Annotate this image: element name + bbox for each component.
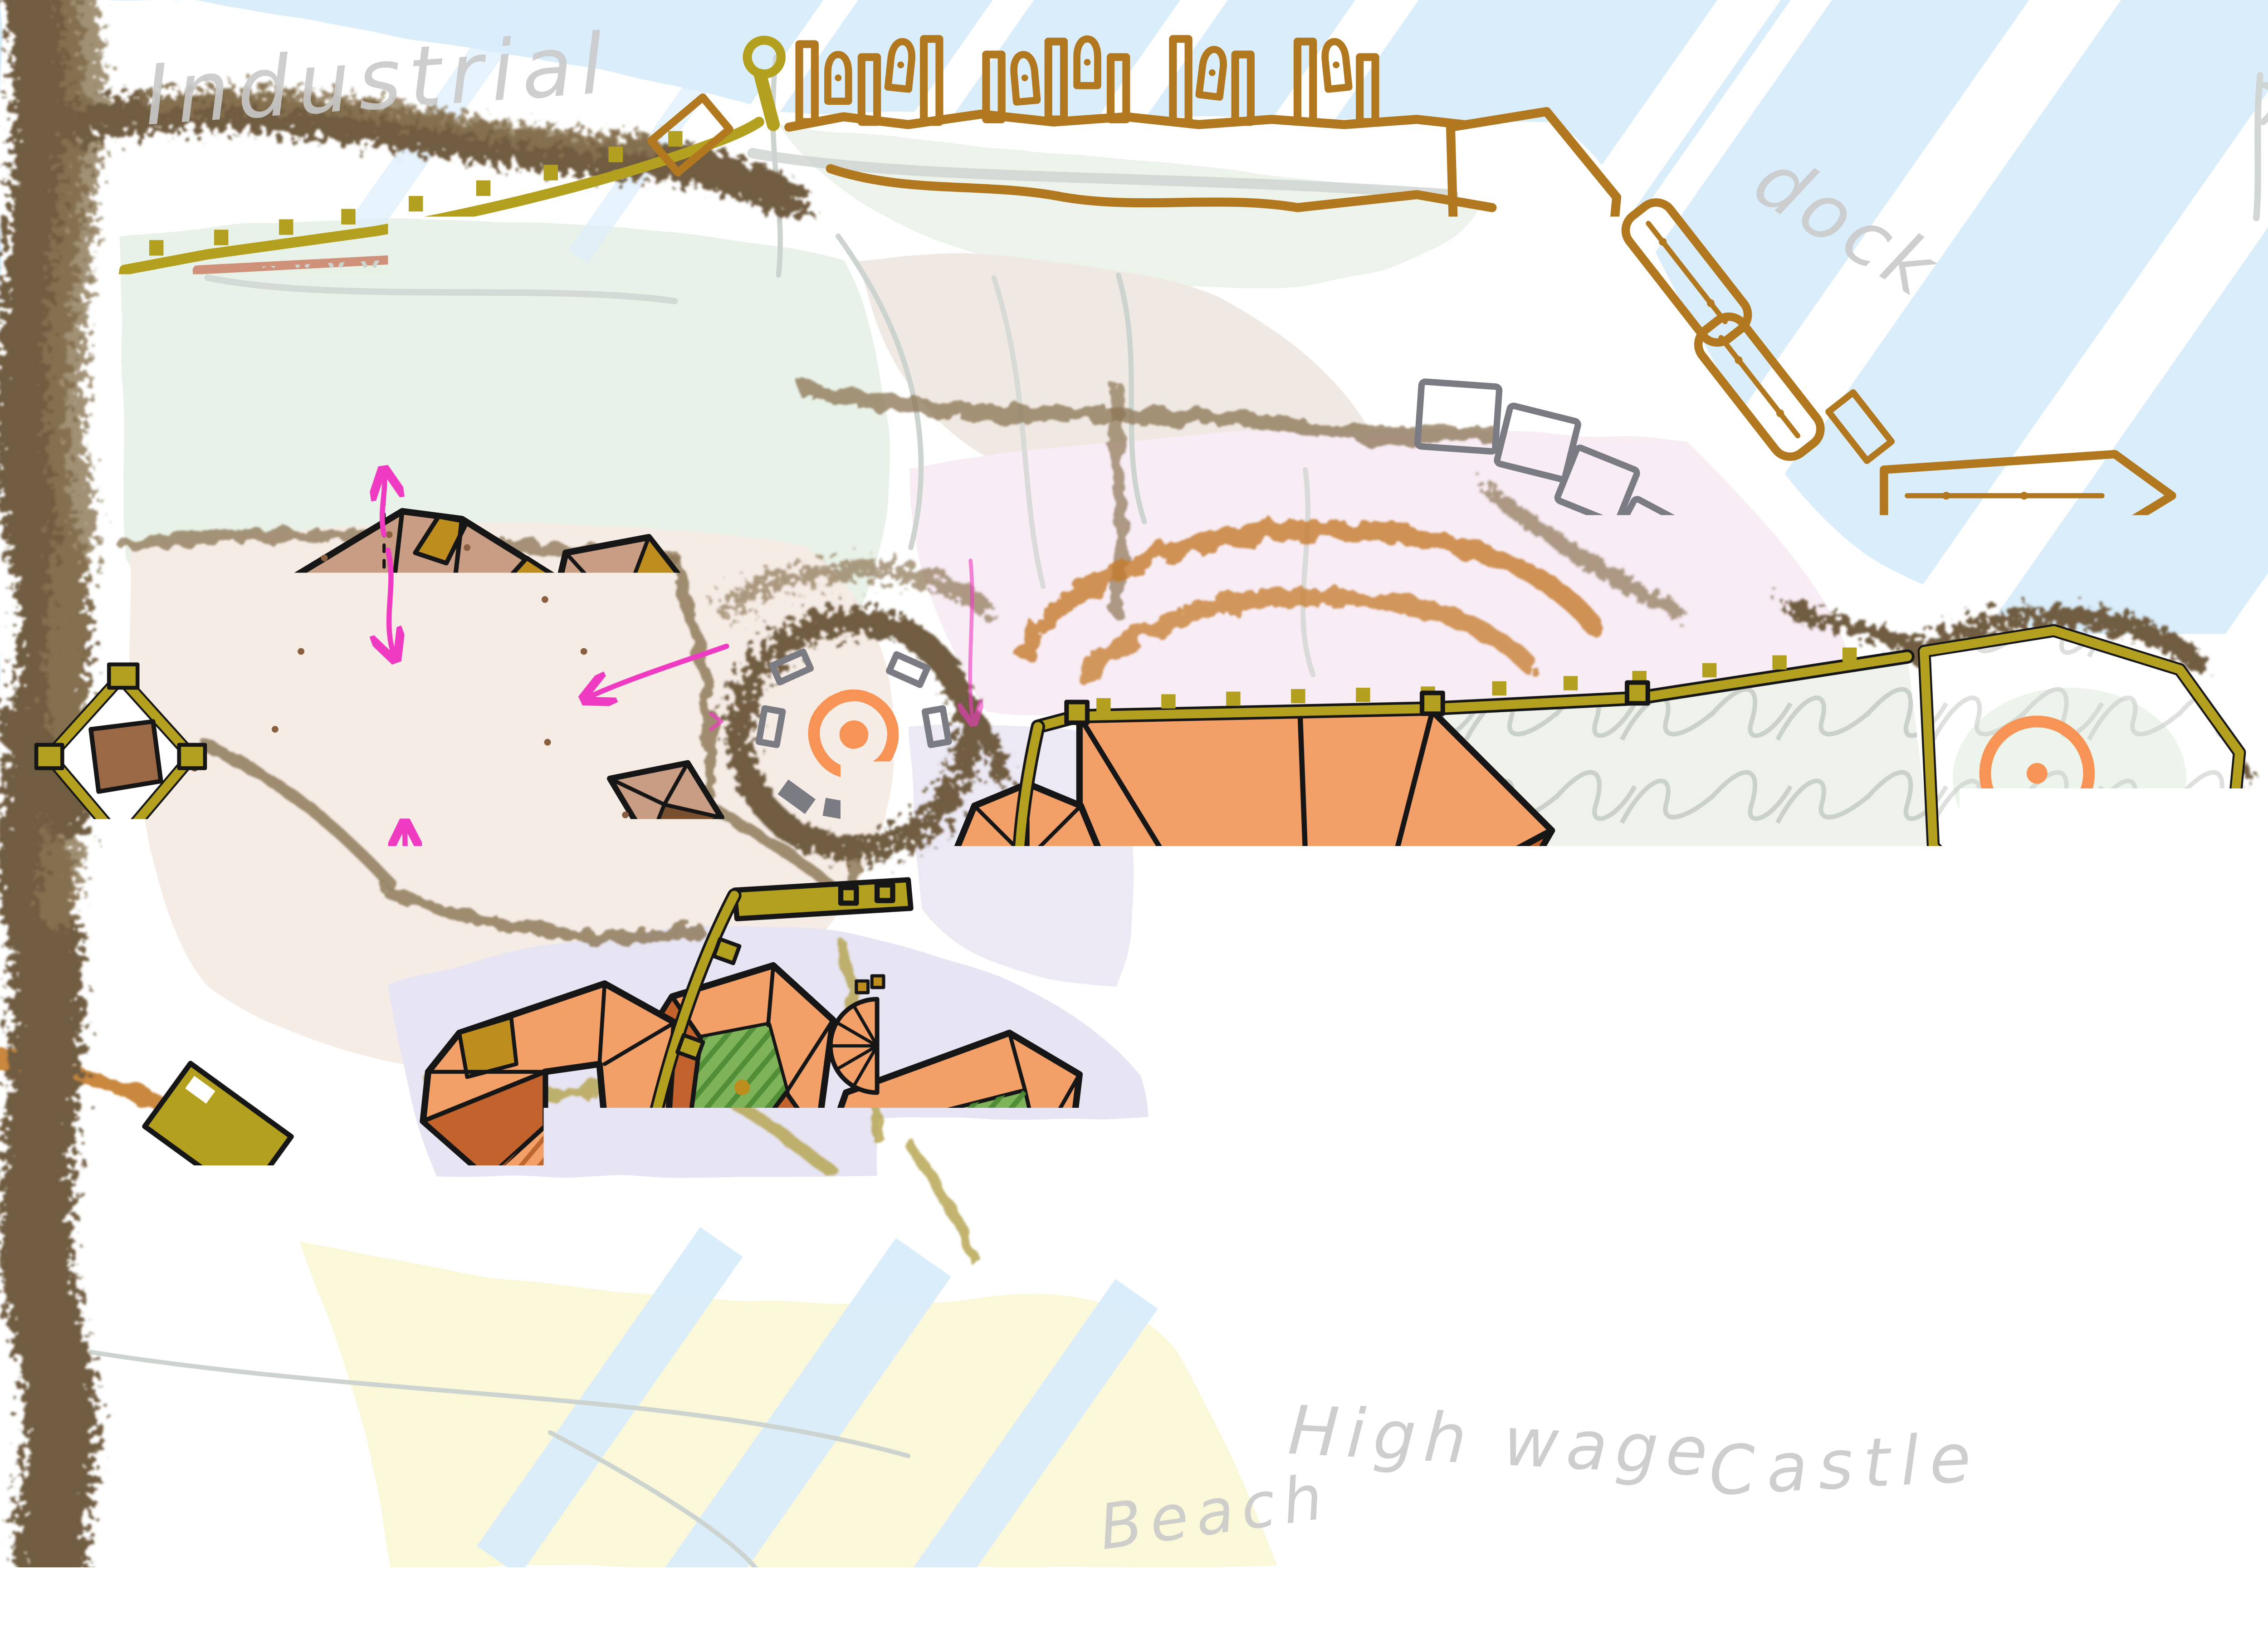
wall-gate (727, 1336, 760, 1362)
castle-garden-court (1229, 1090, 1378, 1316)
market-plaza (745, 626, 963, 844)
gate-keep (91, 721, 161, 791)
east-bastion (1924, 631, 2239, 932)
castle-gate (1149, 1294, 1186, 1321)
castle-long-hall (1513, 1030, 1892, 1308)
wall-gate (939, 1316, 973, 1341)
city-map-canvas: Industrial dock Castle High wage Beach (0, 0, 2268, 1567)
castle-field-brown (1492, 877, 1855, 1033)
label-castle: Castle (1707, 1419, 1983, 1511)
